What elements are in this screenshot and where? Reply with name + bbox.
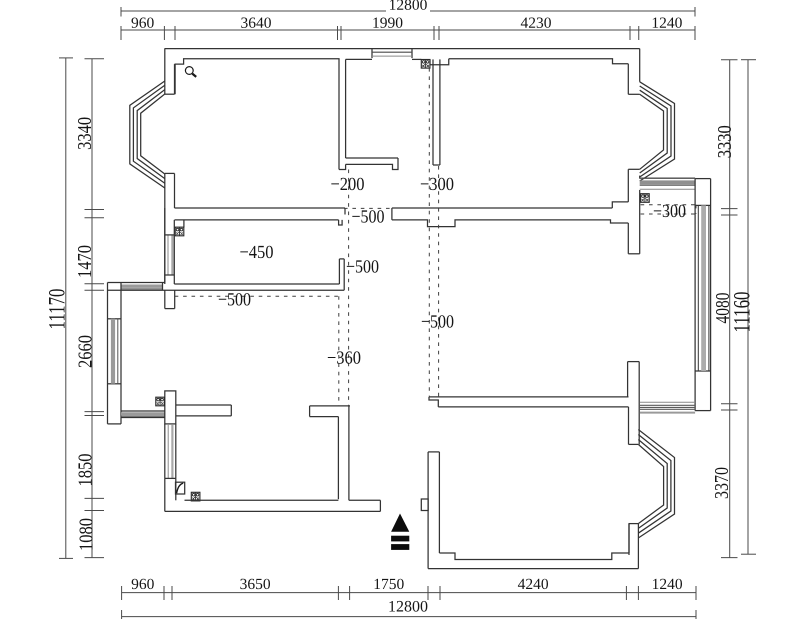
svg-text:−500: −500: [218, 290, 251, 310]
svg-text:1470: 1470: [74, 245, 96, 278]
svg-text:3330: 3330: [714, 125, 736, 158]
svg-text:−450: −450: [239, 243, 273, 263]
svg-text:2660: 2660: [75, 335, 97, 368]
svg-text:11160: 11160: [729, 292, 754, 333]
svg-text:12800: 12800: [388, 598, 428, 615]
svg-text:960: 960: [131, 576, 155, 593]
svg-text:3640: 3640: [240, 15, 271, 32]
svg-text:1750: 1750: [373, 576, 404, 593]
svg-text:3370: 3370: [711, 467, 733, 499]
svg-text:960: 960: [131, 15, 155, 32]
svg-text:−500: −500: [421, 312, 454, 332]
svg-text:1080: 1080: [76, 518, 98, 551]
svg-text:1240: 1240: [652, 576, 683, 593]
svg-text:3340: 3340: [74, 117, 96, 150]
svg-text:1240: 1240: [651, 15, 682, 32]
svg-text:−300: −300: [420, 175, 454, 195]
svg-text:−360: −360: [327, 349, 361, 369]
svg-text:4230: 4230: [520, 15, 551, 32]
svg-text:3650: 3650: [240, 576, 271, 593]
svg-text:−500: −500: [346, 257, 379, 277]
svg-text:12800: 12800: [389, 0, 428, 14]
svg-text:1990: 1990: [372, 15, 403, 32]
svg-text:−500: −500: [351, 207, 384, 227]
svg-text:−200: −200: [330, 175, 364, 195]
svg-text:1850: 1850: [75, 454, 97, 487]
svg-text:−300: −300: [653, 202, 686, 222]
svg-text:4240: 4240: [518, 576, 549, 593]
svg-text:11170: 11170: [45, 289, 70, 330]
